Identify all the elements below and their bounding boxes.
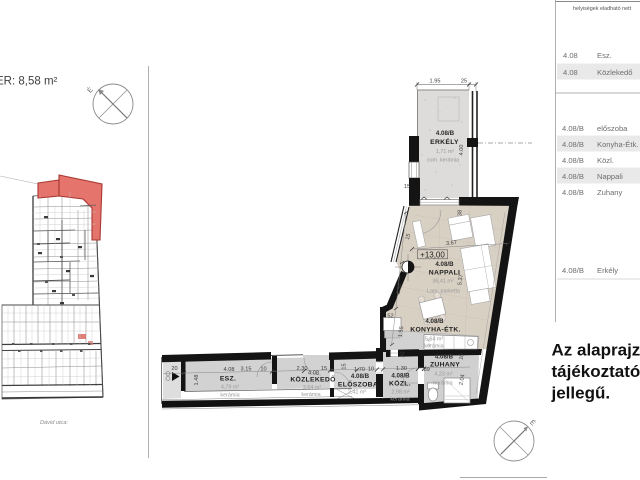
- svg-text:3.15: 3.15: [241, 367, 252, 373]
- svg-text:4.08: 4.08: [563, 51, 578, 60]
- svg-text:20: 20: [171, 366, 177, 372]
- svg-text:1.48: 1.48: [194, 375, 200, 386]
- svg-text:KÖZL.: KÖZL.: [389, 379, 411, 388]
- svg-text:ERKÉLY: ERKÉLY: [430, 137, 459, 146]
- svg-text:4.08/B: 4.08/B: [562, 124, 584, 133]
- svg-text:Az alaprajzok: Az alaprajzok: [552, 341, 640, 360]
- svg-text:Konyha-Étk.: Konyha-Étk.: [597, 140, 638, 149]
- svg-text:15: 15: [405, 233, 412, 240]
- svg-text:ER: 8,58 m²: ER: 8,58 m²: [0, 76, 58, 88]
- svg-text:36,41 m²: 36,41 m²: [432, 279, 453, 285]
- svg-text:ESZ.: ESZ.: [220, 376, 236, 383]
- svg-text:25: 25: [461, 79, 467, 85]
- svg-text:10: 10: [459, 353, 466, 360]
- svg-text:4.08: 4.08: [563, 68, 578, 77]
- svg-text:4.08/B: 4.08/B: [436, 130, 455, 137]
- svg-text:kerámia: kerámia: [301, 392, 320, 398]
- svg-text:2.30: 2.30: [297, 366, 308, 372]
- svg-text:5,64 m²: 5,64 m²: [425, 337, 443, 343]
- svg-text:10: 10: [368, 367, 374, 373]
- svg-text:Dávid utca:: Dávid utca:: [40, 420, 68, 426]
- svg-text:4.08/B: 4.08/B: [562, 266, 584, 275]
- svg-text:kerámia: kerámia: [433, 381, 452, 387]
- svg-text:Esz.: Esz.: [597, 51, 612, 60]
- svg-text:4,23 m²: 4,23 m²: [434, 372, 452, 378]
- svg-text:KONYHA-ÉTK.: KONYHA-ÉTK.: [410, 325, 461, 334]
- svg-text:1.30: 1.30: [396, 366, 407, 372]
- svg-text:15: 15: [404, 184, 410, 190]
- svg-text:1.70: 1.70: [354, 367, 365, 373]
- svg-text:52: 52: [387, 314, 393, 320]
- svg-text:Erkély: Erkély: [597, 266, 618, 275]
- svg-text:kerámia: kerámia: [220, 393, 239, 399]
- svg-text:Közlekedő: Közlekedő: [597, 68, 632, 77]
- svg-text:2,98 m²: 2,98 m²: [391, 390, 409, 396]
- svg-text:NAPPALI: NAPPALI: [429, 270, 460, 277]
- svg-text:4.08/B: 4.08/B: [391, 373, 410, 380]
- svg-text:4.08/B: 4.08/B: [562, 140, 584, 149]
- svg-text:4.08/B: 4.08/B: [562, 156, 584, 165]
- svg-text:jellegű.: jellegű.: [551, 384, 611, 403]
- svg-text:4.08: 4.08: [224, 367, 235, 373]
- svg-text:1,71 m²: 1,71 m²: [436, 149, 454, 155]
- svg-text:38: 38: [458, 210, 464, 216]
- svg-text:.89: .89: [422, 367, 430, 373]
- svg-text:2,41 m²: 2,41 m²: [348, 390, 366, 396]
- svg-text:kerámia: kerámia: [424, 344, 443, 350]
- svg-text:15: 15: [342, 363, 348, 369]
- svg-text:4.08/B: 4.08/B: [425, 318, 444, 325]
- svg-text:ELŐSZOBA: ELŐSZOBA: [338, 380, 378, 389]
- svg-text:4.08/B: 4.08/B: [562, 188, 584, 197]
- svg-text:4.08/B: 4.08/B: [351, 373, 370, 380]
- svg-text:1.95: 1.95: [430, 79, 441, 85]
- svg-text:tájékoztató: tájékoztató: [552, 362, 640, 381]
- svg-text:kerámia: kerámia: [390, 397, 409, 403]
- svg-text:3,64 m²: 3,64 m²: [303, 385, 321, 391]
- svg-text:15: 15: [321, 366, 327, 372]
- svg-text:helyiségek eladható nett: helyiségek eladható nett: [573, 6, 632, 12]
- svg-text:10: 10: [399, 351, 406, 358]
- svg-text:Zuhany: Zuhany: [597, 188, 623, 197]
- svg-text:Közl.: Közl.: [597, 156, 614, 165]
- svg-text:3.67: 3.67: [446, 240, 457, 247]
- svg-text:KÖZLEKEDŐ: KÖZLEKEDŐ: [290, 375, 335, 384]
- svg-text:cum. kerámia: cum. kerámia: [427, 158, 459, 164]
- svg-text:Nappali: Nappali: [597, 172, 623, 181]
- svg-text:4,79 m²: 4,79 m²: [221, 385, 239, 391]
- svg-text:4.08/B: 4.08/B: [435, 354, 454, 361]
- svg-text:Lam. parketta: Lam. parketta: [427, 289, 460, 295]
- svg-text:előszoba: előszoba: [597, 124, 628, 133]
- svg-text:10: 10: [260, 366, 266, 372]
- svg-text:4.08/B: 4.08/B: [435, 261, 454, 268]
- svg-text:4.00: 4.00: [459, 145, 465, 156]
- svg-text:+13,00: +13,00: [420, 251, 445, 260]
- svg-text:4.08/B: 4.08/B: [562, 172, 584, 181]
